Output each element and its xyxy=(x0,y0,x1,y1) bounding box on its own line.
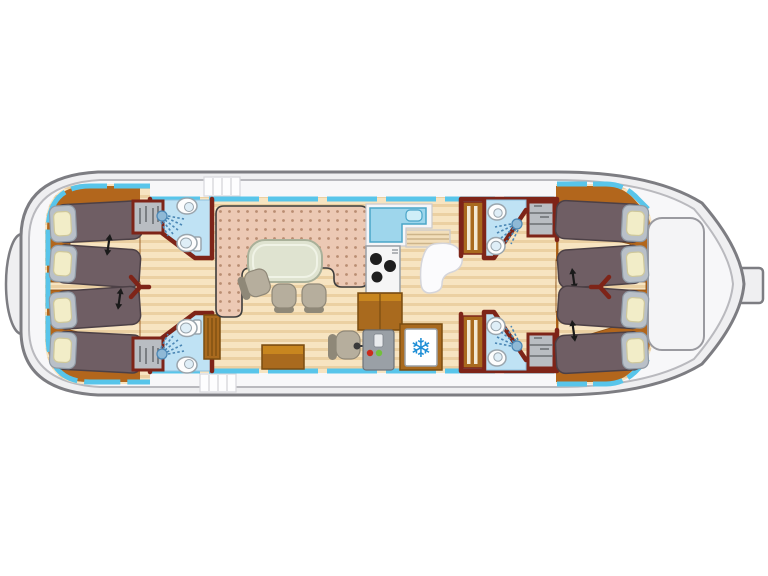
deck-plan-svg: ❄ xyxy=(0,0,768,576)
linen-closet xyxy=(528,334,554,368)
aft-deck-panel xyxy=(648,218,704,350)
berth xyxy=(49,244,141,288)
snowflake-icon: ❄ xyxy=(410,334,432,364)
console-red-button xyxy=(367,350,373,356)
refrigerator: ❄ xyxy=(400,324,442,370)
berth xyxy=(555,200,649,243)
linen-closet xyxy=(528,202,554,236)
galley-cabinet xyxy=(358,293,402,330)
boat-floorplan-canvas: ❄ xyxy=(0,0,768,576)
toilet xyxy=(487,238,505,255)
toilet xyxy=(177,235,201,252)
shelf-unit xyxy=(204,315,220,359)
galley-sink-bowl xyxy=(406,210,422,221)
berth xyxy=(49,286,141,330)
toilet xyxy=(177,320,201,337)
side-deck-steps-top xyxy=(204,177,240,196)
stove xyxy=(366,246,400,293)
chair xyxy=(302,284,326,313)
sideboard xyxy=(262,345,304,369)
washbasin xyxy=(177,198,197,214)
helm-console xyxy=(363,330,394,370)
washbasin xyxy=(488,204,506,220)
slatted-door xyxy=(463,316,483,368)
berth xyxy=(49,201,143,244)
berth xyxy=(555,331,649,374)
washbasin xyxy=(488,350,506,366)
console-green-button xyxy=(376,350,382,356)
slatted-door xyxy=(463,202,483,254)
toilet xyxy=(487,318,505,335)
side-deck-steps-bottom xyxy=(200,374,236,392)
chair xyxy=(272,284,296,313)
berth xyxy=(49,331,143,374)
washbasin xyxy=(177,357,197,373)
